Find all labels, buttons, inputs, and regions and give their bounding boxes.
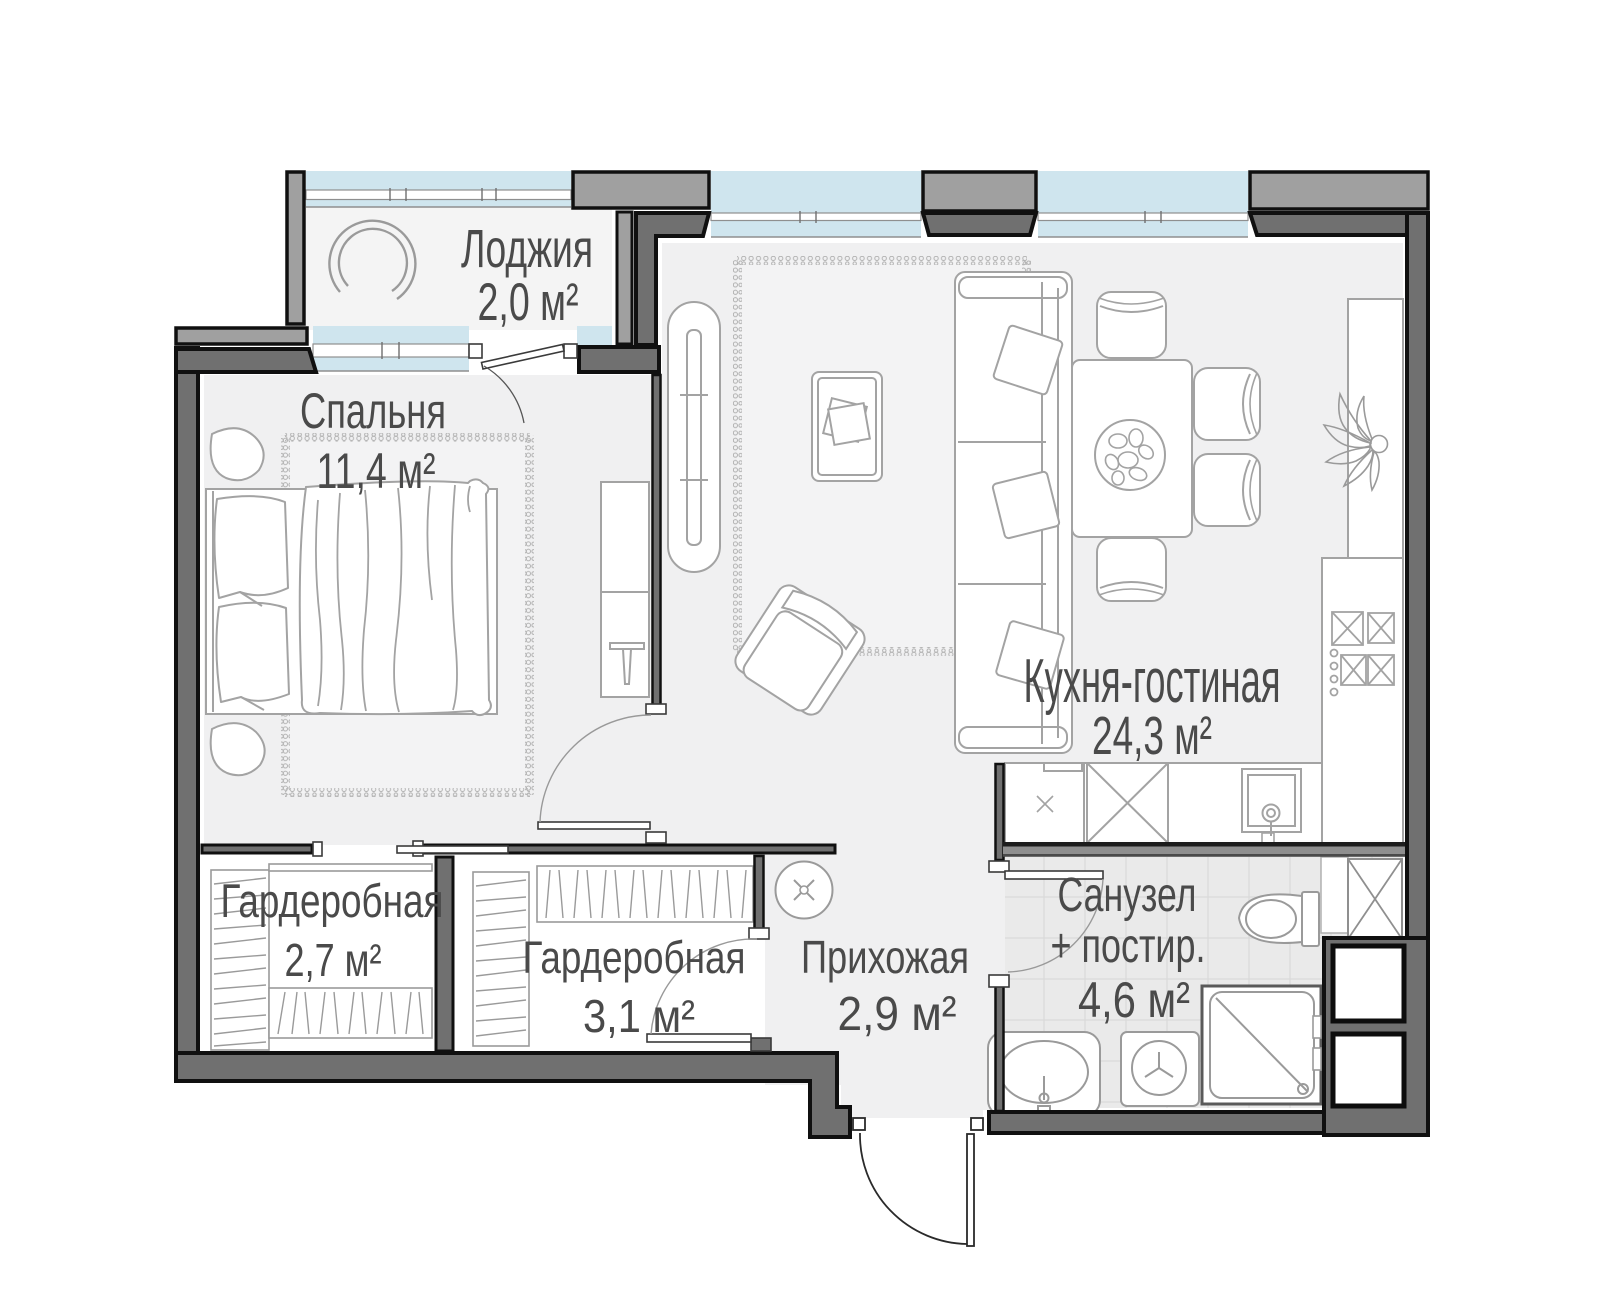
svg-text:24,3 м²: 24,3 м² [1092, 706, 1212, 766]
svg-text:2,7 м²: 2,7 м² [285, 934, 382, 986]
svg-text:Спальня: Спальня [300, 383, 446, 439]
svg-text:2,9 м²: 2,9 м² [838, 988, 957, 1041]
svg-text:Санузел: Санузел [1058, 869, 1197, 922]
svg-text:Лоджия: Лоджия [461, 219, 593, 279]
svg-text:Гардеробная: Гардеробная [221, 874, 444, 927]
svg-text:Гардеробная: Гардеробная [523, 932, 746, 983]
svg-text:3,1 м²: 3,1 м² [583, 990, 695, 1042]
svg-text:4,6 м²: 4,6 м² [1078, 972, 1190, 1028]
svg-text:11,4 м²: 11,4 м² [317, 443, 436, 499]
svg-text:+ постир.: + постир. [1051, 920, 1206, 973]
svg-text:Прихожая: Прихожая [801, 931, 969, 983]
svg-text:2,0 м²: 2,0 м² [478, 273, 579, 332]
